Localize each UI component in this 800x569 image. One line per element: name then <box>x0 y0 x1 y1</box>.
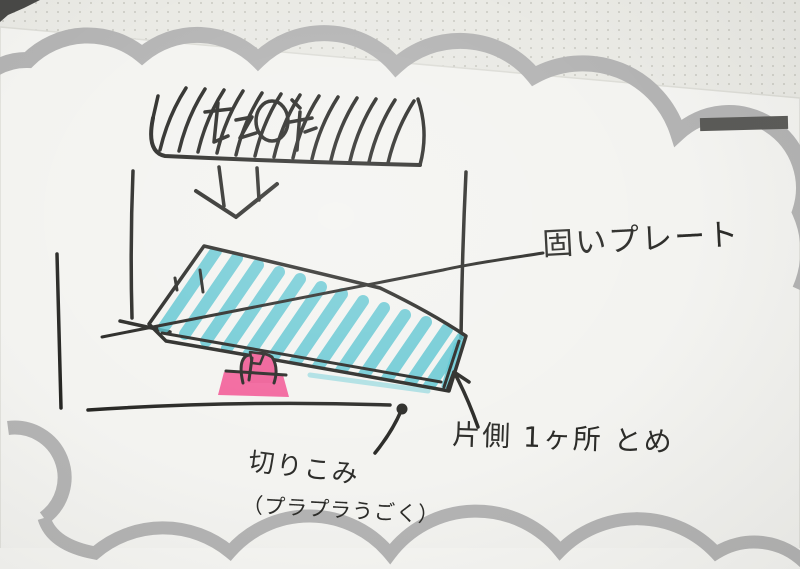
label-one-side-fastening: 片側 1ヶ所 とめ <box>452 413 675 461</box>
photo-of-sketch: 固いプレート 片側 1ヶ所 とめ 切りこみ （プラプラうごく） <box>0 0 800 569</box>
sketch-drawing <box>0 0 800 569</box>
dark-corner-bar <box>700 116 788 131</box>
fastening-dot <box>397 404 408 415</box>
